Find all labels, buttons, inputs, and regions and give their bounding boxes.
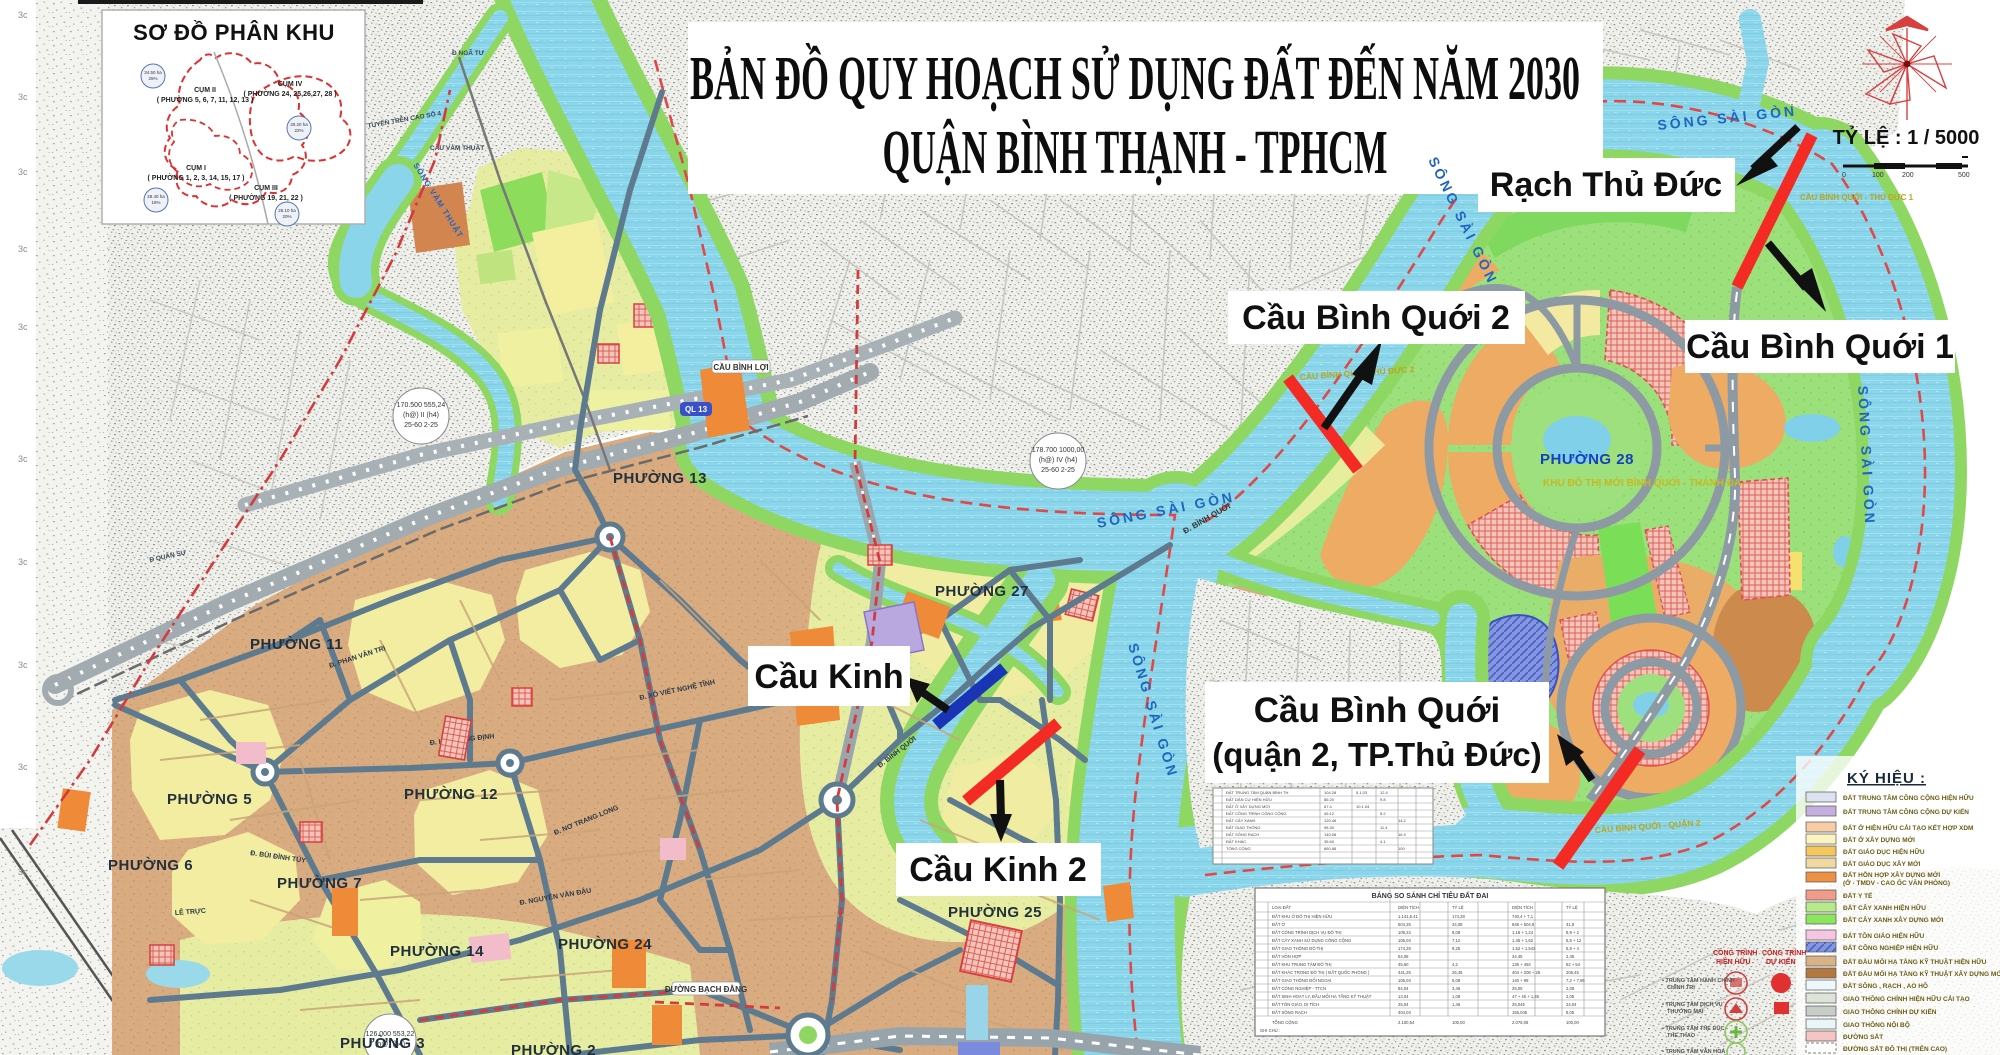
svg-text:ĐẤT Ở: ĐẤT Ở (1272, 922, 1285, 927)
svg-text:3c: 3c (18, 660, 28, 670)
svg-text:TỔNG CỘNG: TỔNG CỘNG (1226, 846, 1251, 851)
svg-text:104.28: 104.28 (1324, 790, 1337, 795)
svg-text:• TRUNG TÂM HÀNH CHÍNH: • TRUNG TÂM HÀNH CHÍNH (1662, 976, 1735, 984)
svg-text:ĐẤT GIAO THÔNG ĐÔ THỊ: ĐẤT GIAO THÔNG ĐÔ THỊ (1272, 946, 1323, 951)
svg-text:ĐẤT DÂN CƯ HIỆN HỮU: ĐẤT DÂN CƯ HIỆN HỮU (1226, 797, 1272, 802)
svg-text:ĐẤT HỖN HỢP: ĐẤT HỖN HỢP (1272, 954, 1302, 959)
svg-text:25,045: 25,045 (1512, 1002, 1525, 1007)
svg-text:41,8: 41,8 (1566, 922, 1575, 927)
svg-text:TỔNG CỘNG: TỔNG CỘNG (1272, 1020, 1298, 1025)
svg-text:120.46: 120.46 (1324, 818, 1337, 823)
svg-text:CỤM I: CỤM I (186, 165, 206, 172)
svg-text:16.3: 16.3 (1398, 832, 1407, 837)
svg-text:CẦU BÌNH LỢI: CẦU BÌNH LỢI (713, 362, 768, 372)
svg-text:3,46: 3,46 (1452, 986, 1461, 991)
svg-text:ĐẤT GIAO THÔNG ĐỐI NGOẠI: ĐẤT GIAO THÔNG ĐỐI NGOẠI (1272, 978, 1331, 983)
svg-text:1,46: 1,46 (1452, 1002, 1461, 1007)
svg-text:ĐẤT Ở XÂY DỰNG MỚI: ĐẤT Ở XÂY DỰNG MỚI (1226, 804, 1270, 809)
svg-text:2,05: 2,05 (1566, 994, 1575, 999)
svg-text:47 + 45 + 1,45: 47 + 45 + 1,45 (1512, 994, 1540, 999)
svg-text:5,8 + 4: 5,8 + 4 (1566, 946, 1580, 951)
svg-text:Cầu Bình Quới 1: Cầu Bình Quới 1 (1686, 328, 1954, 366)
svg-text:THƯƠNG MẠI: THƯƠNG MẠI (1667, 1009, 1704, 1015)
svg-text:ĐẤT CÂY XANH SỬ DỤNG CÔNG CỘNG: ĐẤT CÂY XANH SỬ DỤNG CÔNG CỘNG (1272, 938, 1351, 943)
svg-text:5.1.03: 5.1.03 (1356, 790, 1368, 795)
svg-text:ĐẤT CÔNG TRÌNH DỊCH VỤ ĐÔ THỊ: ĐẤT CÔNG TRÌNH DỊCH VỤ ĐÔ THỊ (1272, 930, 1342, 935)
svg-text:PHƯỜNG 13: PHƯỜNG 13 (613, 469, 707, 487)
svg-text:740,4 + 7,1: 740,4 + 7,1 (1512, 914, 1534, 919)
svg-text:ĐẤT TRUNG TÂM QUẬN BÌNH TH: ĐẤT TRUNG TÂM QUẬN BÌNH TH (1226, 790, 1288, 795)
svg-text:TỶ LỆ : 1 / 5000: TỶ LỆ : 1 / 5000 (1833, 125, 1980, 149)
svg-text:18%: 18% (151, 200, 160, 205)
svg-text:Đ NGÃ TƯ: Đ NGÃ TƯ (452, 48, 485, 57)
svg-text:1,08: 1,08 (1452, 994, 1461, 999)
svg-text:ĐẤT CÔNG TRÌNH CÔNG CỘNG: ĐẤT CÔNG TRÌNH CÔNG CỘNG (1226, 811, 1287, 816)
svg-text:Cầu Kinh: Cầu Kinh (754, 658, 903, 696)
svg-text:20%: 20% (282, 214, 291, 219)
svg-text:848 + 504,9: 848 + 504,9 (1512, 922, 1535, 927)
svg-text:ĐẤT CÂY XANH: ĐẤT CÂY XANH (1226, 818, 1256, 823)
svg-text:CÔNG TRÌNH: CÔNG TRÌNH (1713, 948, 1757, 957)
svg-text:5,5 + 12: 5,5 + 12 (1566, 938, 1582, 943)
svg-text:( PHƯỜNG 5, 6, 7, 11, 12, 13 ): ( PHƯỜNG 5, 6, 7, 11, 12, 13 ) (157, 95, 254, 104)
svg-text:9.8: 9.8 (1380, 797, 1386, 802)
svg-text:35.60: 35.60 (1324, 839, 1335, 844)
svg-text:34,45: 34,45 (1512, 954, 1523, 959)
svg-text:PHƯỜNG 7: PHƯỜNG 7 (277, 874, 362, 892)
svg-text:135 + 454: 135 + 454 (1512, 962, 1531, 967)
svg-text:9,25: 9,25 (1452, 946, 1461, 951)
svg-text:ĐƯỜNG SẮT: ĐƯỜNG SẮT (1843, 1032, 1883, 1041)
svg-text:TỶ LỆ: TỶ LỆ (1452, 905, 1464, 910)
svg-text:PHƯỜNG 3: PHƯỜNG 3 (340, 1034, 425, 1052)
svg-text:2,45: 2,45 (1566, 954, 1575, 959)
svg-text:1.52 + 1.542: 1.52 + 1.542 (1512, 946, 1536, 951)
svg-text:THỂ THAO: THỂ THAO (1667, 1032, 1696, 1039)
svg-text:4,2: 4,2 (1452, 962, 1458, 967)
svg-text:CHÍNH TRỊ: CHÍNH TRỊ (1667, 983, 1695, 991)
svg-text:441,25: 441,25 (1398, 970, 1411, 975)
svg-text:11.4: 11.4 (1380, 825, 1388, 830)
svg-text:ĐẤT KHU TRUNG TÂM ĐÔ THỊ: ĐẤT KHU TRUNG TÂM ĐÔ THỊ (1272, 962, 1331, 967)
svg-text:CỤM III: CỤM III (254, 185, 278, 192)
svg-text:PHƯỜNG 28: PHƯỜNG 28 (1540, 450, 1634, 468)
svg-text:105,04: 105,04 (1398, 978, 1411, 983)
svg-text:200: 200 (1902, 172, 1914, 179)
svg-text:PHƯỜNG 14: PHƯỜNG 14 (390, 942, 484, 960)
svg-text:ĐƯỜNG SẮT ĐÔ THỊ (TRÊN CAO): ĐƯỜNG SẮT ĐÔ THỊ (TRÊN CAO) (1843, 1044, 1947, 1053)
svg-text:5,08: 5,08 (1452, 978, 1461, 983)
svg-text:GIAO THÔNG CHÍNH HIỆN HỮU CẢI: GIAO THÔNG CHÍNH HIỆN HỮU CẢI TẠO (1843, 994, 1970, 1003)
svg-text:BẢN ĐỒ QUY HOẠCH SỬ DỤNG ĐẤT Đ: BẢN ĐỒ QUY HOẠCH SỬ DỤNG ĐẤT ĐẾN NĂM 203… (690, 44, 1580, 113)
svg-text:140.08: 140.08 (1324, 832, 1337, 837)
svg-text:1.141,5.41: 1.141,5.41 (1398, 914, 1418, 919)
svg-text:155,045: 155,045 (1512, 1010, 1528, 1015)
svg-text:(h@) IV (h4): (h@) IV (h4) (1039, 457, 1078, 464)
svg-text:CỤM II: CỤM II (194, 87, 216, 94)
svg-text:25%: 25% (148, 76, 157, 81)
svg-text:ĐẤT GIAO THÔNG: ĐẤT GIAO THÔNG (1226, 825, 1261, 830)
svg-text:3c: 3c (18, 244, 28, 254)
svg-text:Cầu Kinh 2: Cầu Kinh 2 (909, 851, 1087, 889)
svg-text:67.4: 67.4 (1324, 804, 1333, 809)
svg-text:45,60: 45,60 (1398, 962, 1409, 967)
svg-text:PHƯỜNG 24: PHƯỜNG 24 (558, 935, 652, 953)
svg-text:7,2 + 7,85: 7,2 + 7,85 (1566, 978, 1585, 983)
svg-text:140 + 98: 140 + 98 (1512, 978, 1529, 983)
svg-text:1.18 + 1,24: 1.18 + 1,24 (1512, 930, 1534, 935)
svg-text:170.500 555,24: 170.500 555,24 (397, 402, 446, 409)
svg-text:504,25: 504,25 (1398, 922, 1411, 927)
svg-text:174,28: 174,28 (1398, 946, 1411, 951)
svg-text:8,9 + 2: 8,9 + 2 (1566, 930, 1580, 935)
svg-text:10.1.04: 10.1.04 (1356, 804, 1370, 809)
svg-text:ĐẤT KHÁC: ĐẤT KHÁC (1226, 839, 1246, 844)
svg-text:(h@) II (h4): (h@) II (h4) (403, 412, 439, 419)
svg-text:HIỆN HỮU: HIỆN HỮU (1716, 957, 1751, 966)
svg-text:PHƯỜNG 25: PHƯỜNG 25 (948, 903, 1042, 921)
svg-text:2.100,54: 2.100,54 (1398, 1020, 1415, 1025)
svg-text:LOẠI ĐẤT: LOẠI ĐẤT (1272, 905, 1292, 910)
svg-text:QL 13: QL 13 (685, 405, 708, 414)
svg-text:DIỆN TÍCH: DIỆN TÍCH (1398, 905, 1419, 910)
svg-text:54,08: 54,08 (1398, 954, 1409, 959)
svg-text:500: 500 (1958, 172, 1970, 179)
svg-text:3c: 3c (18, 10, 28, 20)
svg-text:3c: 3c (18, 762, 28, 772)
svg-text:PHƯỜNG 11: PHƯỜNG 11 (250, 635, 343, 653)
svg-text:174,28: 174,28 (1452, 914, 1465, 919)
svg-text:34,08: 34,08 (1452, 922, 1463, 927)
svg-text:Cầu Bình Quới 2: Cầu Bình Quới 2 (1242, 299, 1510, 337)
svg-text:ĐẤT SINH HOẠT LY, ĐẦU MỐI HẠ T: ĐẤT SINH HOẠT LY, ĐẦU MỐI HẠ TẦNG KỸ THU… (1272, 994, 1372, 999)
svg-text:34.50 ha: 34.50 ha (144, 70, 162, 75)
svg-text:8,08: 8,08 (1452, 930, 1461, 935)
svg-text:105,04: 105,04 (1398, 938, 1411, 943)
svg-text:25-60 2-25: 25-60 2-25 (404, 422, 438, 429)
svg-text:3c: 3c (18, 92, 28, 102)
svg-text:3c: 3c (18, 454, 28, 464)
svg-text:KÝ HIỆU :: KÝ HIỆU : (1847, 769, 1926, 787)
svg-text:ĐẤT KHÁC TRONG ĐÔ THỊ ( ĐẤT QU: ĐẤT KHÁC TRONG ĐÔ THỊ ( ĐẤT QUỐC PHÒNG ) (1272, 970, 1370, 975)
svg-text:3c: 3c (18, 322, 28, 332)
svg-text:24,04: 24,04 (1566, 1002, 1577, 1007)
svg-text:TỶ LỆ: TỶ LỆ (1566, 905, 1578, 910)
svg-text:12.4: 12.4 (1380, 790, 1389, 795)
svg-text:4.1: 4.1 (1380, 839, 1386, 844)
svg-text:84,04: 84,04 (1398, 986, 1409, 991)
svg-text:Cầu Bình Quới: Cầu Bình Quới (1254, 691, 1501, 730)
svg-text:100,00: 100,00 (1452, 1020, 1465, 1025)
svg-text:PHƯỜNG 5: PHƯỜNG 5 (167, 790, 252, 808)
svg-text:PHƯỜNG 6: PHƯỜNG 6 (108, 856, 193, 874)
svg-text:62 + 54: 62 + 54 (1566, 962, 1581, 967)
svg-text:100,00: 100,00 (1566, 1020, 1579, 1025)
svg-text:DIỆN TÍCH: DIỆN TÍCH (1512, 905, 1533, 910)
svg-text:206,45: 206,45 (1566, 970, 1579, 975)
svg-text:86.20: 86.20 (1324, 797, 1335, 802)
svg-text:7,12: 7,12 (1452, 938, 1461, 943)
svg-text:• TRUNG TÂM THỂ DỤC: • TRUNG TÂM THỂ DỤC (1662, 1025, 1724, 1032)
svg-text:( PHƯỜNG 1, 2, 3, 14, 15, 17 ): ( PHƯỜNG 1, 2, 3, 14, 15, 17 ) (148, 173, 245, 182)
svg-text:3c: 3c (18, 867, 28, 877)
svg-text:45.12: 45.12 (1324, 811, 1335, 816)
svg-text:25-60 2-25: 25-60 2-25 (1041, 467, 1075, 474)
svg-text:QUẬN BÌNH THẠNH - TPHCM: QUẬN BÌNH THẠNH - TPHCM (883, 119, 1388, 187)
svg-text:100: 100 (1872, 172, 1884, 179)
svg-text:0: 0 (1842, 172, 1846, 179)
svg-text:ĐẤT SÔNG RẠCH: ĐẤT SÔNG RẠCH (1272, 1010, 1307, 1015)
svg-text:(quận 2, TP.Thủ Đức): (quận 2, TP.Thủ Đức) (1212, 736, 1541, 773)
svg-text:13,04: 13,04 (1398, 994, 1409, 999)
svg-text:• TRUNG TÂM DỊCH VỤ: • TRUNG TÂM DỊCH VỤ (1662, 1001, 1723, 1008)
svg-text:109,22: 109,22 (1398, 930, 1411, 935)
svg-text:178.700 1000,00: 178.700 1000,00 (1032, 447, 1085, 454)
svg-text:3c: 3c (18, 557, 28, 567)
svg-text:404 + 208 + 26: 404 + 208 + 26 (1512, 970, 1541, 975)
svg-text:22%: 22% (294, 128, 303, 133)
svg-text:KHU ĐÔ THỊ MỚI BÌNH QUỚI - THA: KHU ĐÔ THỊ MỚI BÌNH QUỚI - THANH ĐA (1543, 476, 1741, 489)
svg-text:5.2: 5.2 (1380, 811, 1386, 816)
svg-text:PHƯỜNG 27: PHƯỜNG 27 (935, 582, 1029, 600)
svg-text:25,04: 25,04 (1398, 1002, 1409, 1007)
svg-text:CẦU BÌNH QUỚI - THỦ ĐỨC 1: CẦU BÌNH QUỚI - THỦ ĐỨC 1 (1800, 192, 1914, 202)
svg-text:860.88: 860.88 (1324, 846, 1337, 851)
svg-text:ĐƯỜNG BẠCH ĐẰNG: ĐƯỜNG BẠCH ĐẰNG (665, 985, 747, 994)
svg-text:1.45 + 1,62: 1.45 + 1,62 (1512, 938, 1534, 943)
svg-text:404,04: 404,04 (1398, 1010, 1411, 1015)
svg-text:PHƯỜNG 12: PHƯỜNG 12 (404, 785, 498, 803)
svg-text:CỤM IV: CỤM IV (278, 81, 303, 88)
svg-text:ĐẤT KHU Ở ĐÔ THỊ HIỆN HỮU: ĐẤT KHU Ở ĐÔ THỊ HIỆN HỮU (1272, 914, 1332, 919)
svg-text:Rạch Thủ Đức: Rạch Thủ Đức (1490, 166, 1722, 204)
svg-text:2.075,08: 2.075,08 (1512, 1020, 1529, 1025)
svg-text:GIAO THÔNG NỘI BỘ: GIAO THÔNG NỘI BỘ (1843, 1020, 1910, 1029)
svg-text:8,05: 8,05 (1566, 1010, 1575, 1015)
svg-text:ĐẤT TÔN GIÁO, DI TÍCH: ĐẤT TÔN GIÁO, DI TÍCH (1272, 1002, 1319, 1007)
svg-text:CÔNG TRÌNH: CÔNG TRÌNH (1762, 948, 1806, 957)
svg-text:3c: 3c (18, 167, 28, 177)
svg-text:26,45: 26,45 (1452, 970, 1463, 975)
svg-text:30.20 ha: 30.20 ha (290, 122, 308, 127)
svg-text:PHƯỜNG 2: PHƯỜNG 2 (511, 1041, 596, 1055)
svg-text:SƠ ĐỒ PHÂN KHU: SƠ ĐỒ PHÂN KHU (133, 20, 335, 45)
svg-text:25,05: 25,05 (1512, 986, 1523, 991)
svg-text:98.30: 98.30 (1324, 825, 1335, 830)
svg-text:2,08: 2,08 (1566, 986, 1575, 991)
svg-text:• TRUNG TÂM VĂN HOÁ: • TRUNG TÂM VĂN HOÁ (1662, 1048, 1725, 1055)
svg-text:( PHƯỜNG 19, 21, 22 ): ( PHƯỜNG 19, 21, 22 ) (229, 193, 303, 202)
svg-text:( PHƯỜNG 24, 25,26,27, 28 ): ( PHƯỜNG 24, 25,26,27, 28 ) (243, 89, 336, 98)
svg-text:26.10 ha: 26.10 ha (278, 208, 296, 213)
svg-text:ĐẤT SÔNG RẠCH: ĐẤT SÔNG RẠCH (1226, 832, 1259, 837)
svg-text:28.40 ha: 28.40 ha (147, 194, 165, 199)
svg-text:GHI CHÚ :: GHI CHÚ : (1260, 1028, 1280, 1033)
svg-text:14.2: 14.2 (1398, 818, 1407, 823)
svg-text:100: 100 (1398, 846, 1405, 851)
svg-text:ĐẤT CÔNG NGHIỆP - TTCN: ĐẤT CÔNG NGHIỆP - TTCN (1272, 986, 1326, 991)
